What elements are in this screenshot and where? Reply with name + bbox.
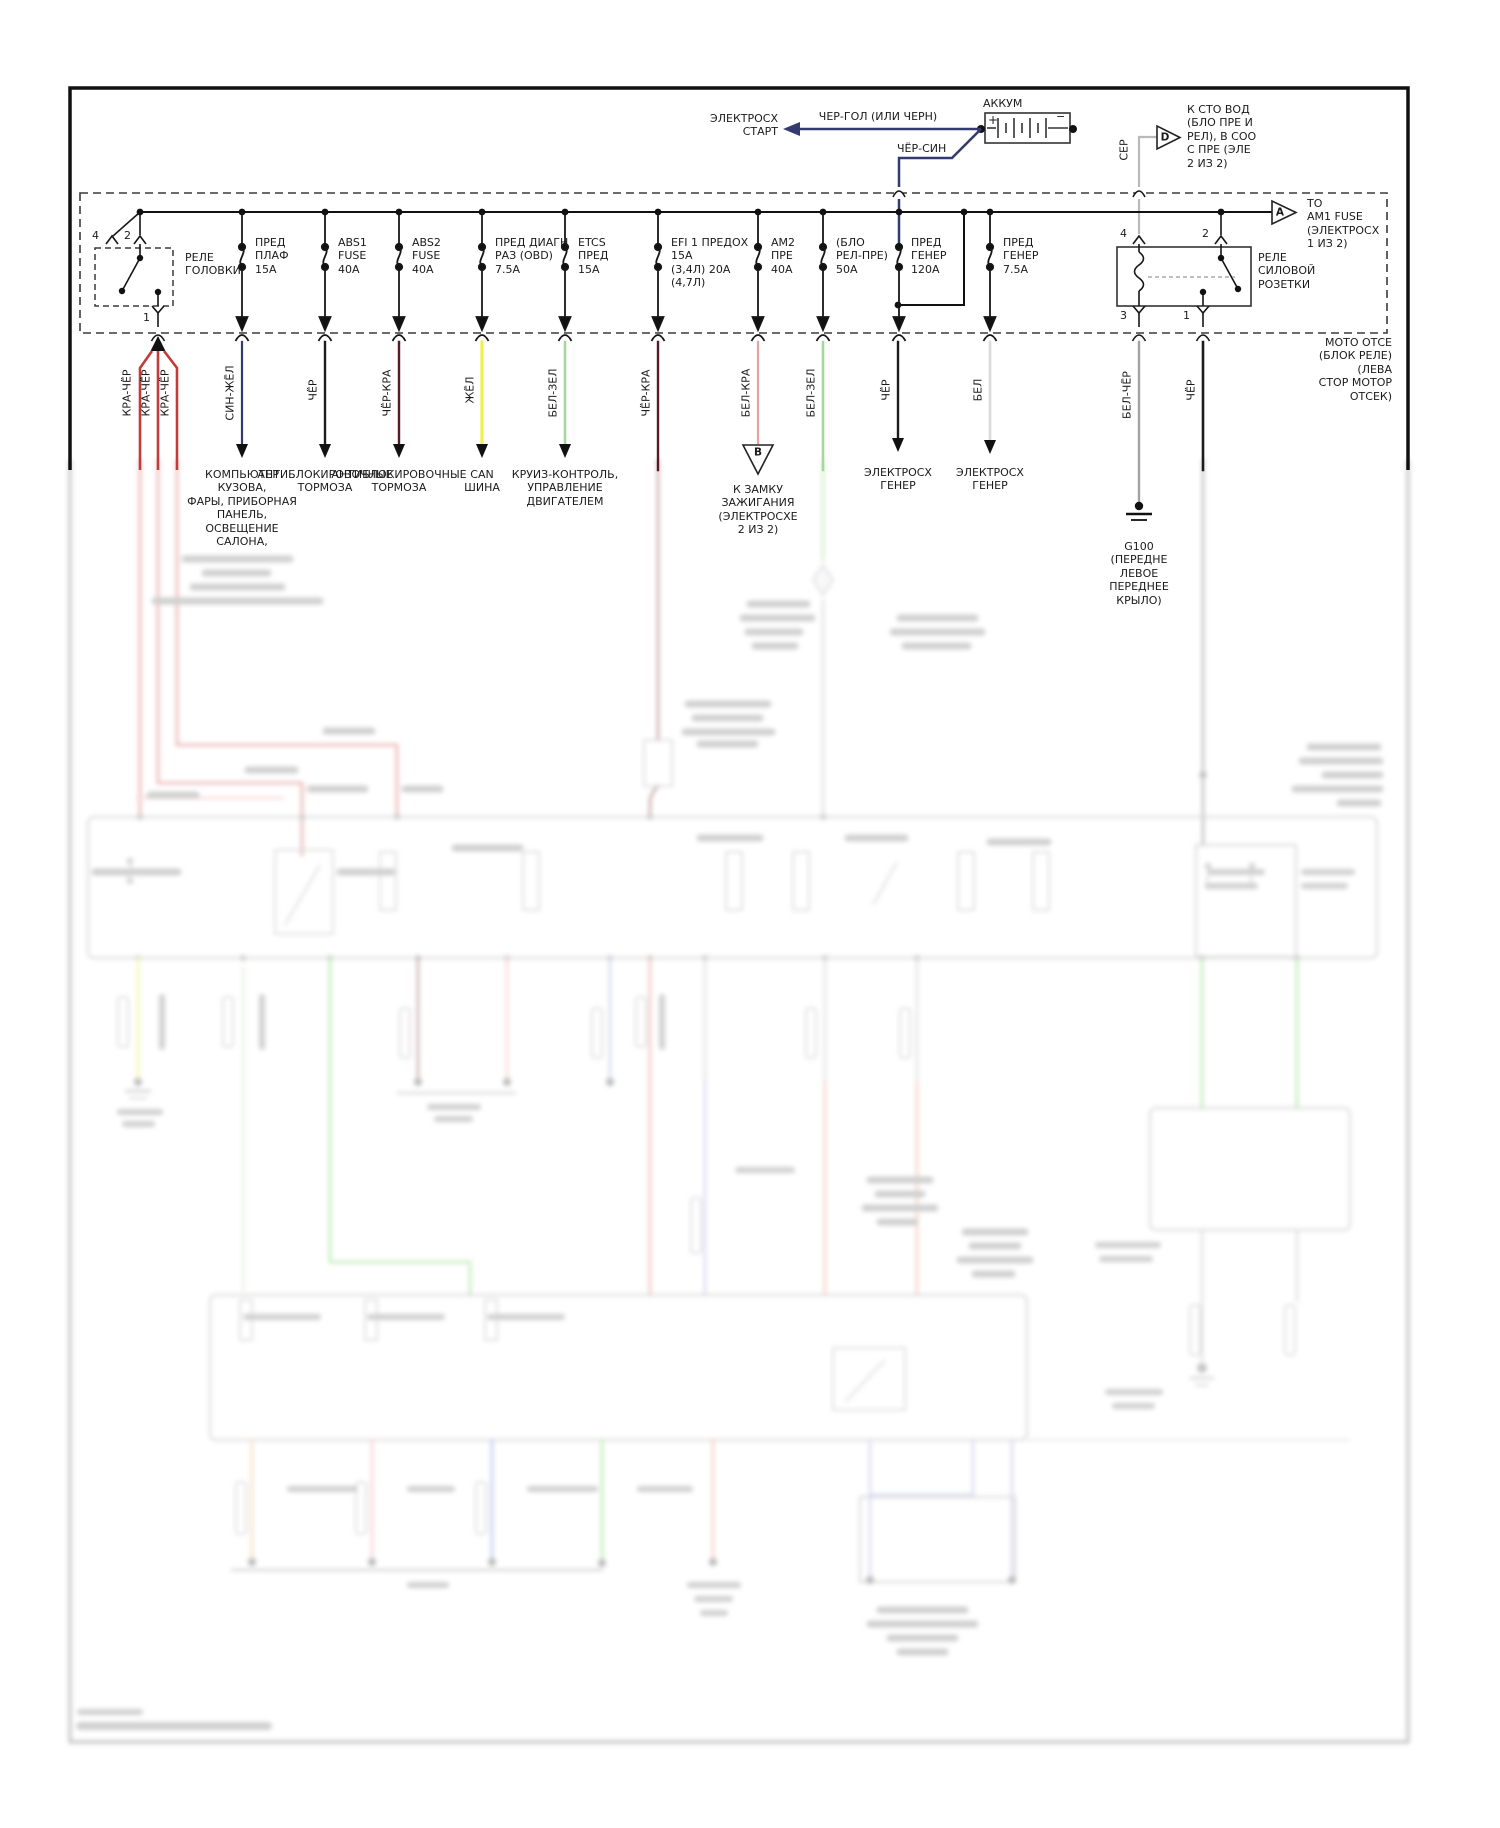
wire-label-cher-sin: ЧЁР-СИН	[897, 142, 946, 155]
head-relay-label: РЕЛЕ ГОЛОВКИ	[185, 251, 241, 278]
outlet-relay-pin1: 1	[1183, 309, 1190, 322]
hop	[1133, 191, 1145, 197]
dest-ground-g100: G100 (ПЕРЕДНЕ ЛЕВОЕ ПЕРЕДНЕЕ КРЫЛО)	[1109, 540, 1169, 607]
head-relay-pin1: 1	[143, 311, 150, 324]
head-relay-pin4: 4	[92, 229, 99, 242]
dest-cruise: КРУИЗ-КОНТРОЛЬ, УПРАВЛЕНИЕ ДВИГАТЕЛЕМ	[512, 468, 618, 508]
wire-label-6: ЧЁР-КРА	[380, 369, 393, 416]
fuse-label-gener75: ПРЕД ГЕНЕР 7.5A	[1003, 236, 1039, 276]
start-circuit-label: ЭЛЕКТРОСХ СТАРТ	[710, 112, 778, 139]
outlet-relay-label: РЕЛЕ СИЛОВОЙ РОЗЕТКИ	[1258, 251, 1315, 291]
ser-wire	[1139, 137, 1157, 234]
sto-vod-label: К СТО ВОД (БЛО ПРЕ И РЕЛ), В СОО С ПРЕ (…	[1187, 103, 1256, 170]
fuse-label-gener120: ПРЕД ГЕНЕР 120A	[911, 236, 947, 276]
fuse-label-plaf: ПРЕД ПЛАФ 15A	[255, 236, 289, 276]
wire-label-ser: СЕР	[1117, 139, 1130, 160]
start-arrow	[783, 122, 800, 136]
battery-wires	[799, 129, 981, 246]
am1-fuse-label: TO AM1 FUSE (ЭЛЕКТРОСХ 1 ИЗ 2)	[1307, 197, 1379, 251]
fuse-label-abs1: ABS1 FUSE 40A	[338, 236, 367, 276]
wire-label-14: БЕЛ-ЧЁР	[1120, 371, 1133, 419]
dest-abs-2: АНТИБЛОКИРОВОЧНЫЕ ТОРМОЗА	[331, 468, 466, 495]
fuse-columns	[236, 212, 997, 341]
fuse-label-efi1: EFI 1 ПРЕДОХ 15A (3,4Л) 20A (4,7Л)	[671, 236, 748, 290]
hop	[893, 191, 905, 197]
wire-label-9: ЧЁР-КРА	[639, 369, 652, 416]
triangle-a-letter: A	[1276, 207, 1284, 220]
dest-generator-1: ЭЛЕКТРОСХ ГЕНЕР	[864, 466, 932, 493]
wire-label-7: ЖЁЛ	[463, 376, 476, 403]
battery-plus: +	[988, 113, 998, 128]
fuse-label-etcs: ETCS ПРЕД 15A	[578, 236, 608, 276]
triangle-d-letter: D	[1161, 132, 1170, 145]
wire-label-15: ЧЁР	[1184, 379, 1197, 400]
wire-label-3: КРА-ЧЁР	[158, 369, 171, 416]
wire-label-8: БЕЛ-ЗЕЛ	[546, 368, 559, 417]
wire-label-cher-gol: ЧЕР-ГОЛ (ИЛИ ЧЕРН)	[819, 110, 937, 123]
dest-ignition: К ЗАМКУ ЗАЖИГАНИЯ (ЭЛЕКТРОСХЕ 2 ИЗ 2)	[718, 483, 797, 537]
wire-label-10: БЕЛ-КРА	[739, 369, 752, 418]
wire-label-4: СИН-ЖЁЛ	[223, 365, 236, 420]
fuse-label-blo-rel: (БЛО РЕЛ-ПРЕ) 50A	[836, 236, 888, 276]
head-relay-pin2: 2	[124, 229, 131, 242]
outlet-relay-pin3: 3	[1120, 309, 1127, 322]
fuse-label-abs2: ABS2 FUSE 40A	[412, 236, 441, 276]
wiring-diagram-page: ЭЛЕКТРОСХ СТАРТ ЧЕР-ГОЛ (ИЛИ ЧЕРН) ЧЁР-С…	[0, 0, 1500, 1828]
dest-can-bus: CAN ШИНА	[464, 468, 500, 495]
battery-label: АККУМ	[983, 97, 1022, 110]
head-relay-symbol	[95, 213, 177, 470]
battery-minus: −	[1056, 110, 1065, 123]
fuse-label-am2: АМ2 ПРЕ 40A	[771, 236, 795, 276]
fusebox-location-note: МОТО ОТСЕ (БЛОК РЕЛЕ) (ЛЕВА СТОР МОТОР О…	[1319, 336, 1392, 403]
outlet-relay-pin4: 4	[1120, 227, 1127, 240]
wire-label-5: ЧЁР	[306, 379, 319, 400]
ground-g100-icon	[1126, 502, 1152, 520]
fuse-label-obd: ПРЕД ДИАГН РАЗ (OBD) 7.5A	[495, 236, 568, 276]
dest-generator-2: ЭЛЕКТРОСХ ГЕНЕР	[956, 466, 1024, 493]
triangle-b-letter: B	[754, 447, 762, 460]
wire-label-1: КРА-ЧЁР	[120, 369, 133, 416]
wire-label-11: БЕЛ-ЗЕЛ	[804, 368, 817, 417]
outlet-relay-pin2: 2	[1202, 227, 1209, 240]
wire-label-13: БЕЛ	[971, 379, 984, 402]
wire-label-2: КРА-ЧЁР	[139, 369, 152, 416]
wire-label-12: ЧЁР	[879, 379, 892, 400]
